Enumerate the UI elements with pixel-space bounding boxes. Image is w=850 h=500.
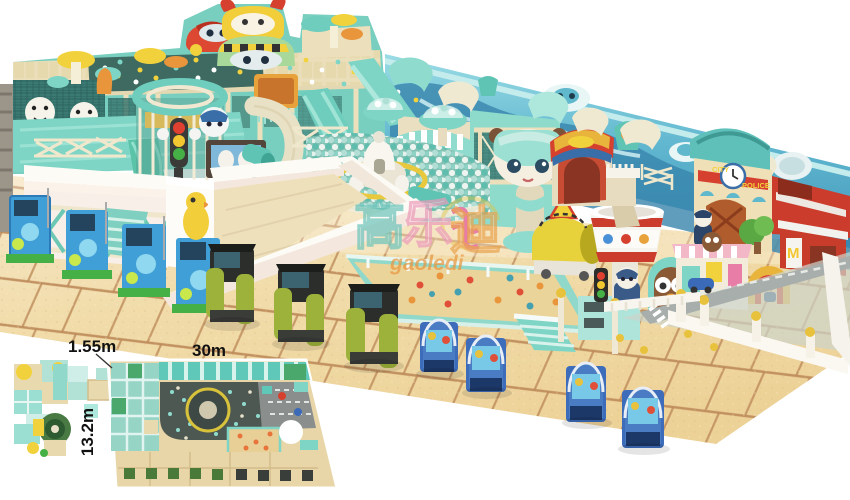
svg-text:1.55m: 1.55m bbox=[68, 337, 116, 356]
svg-text:POLICE: POLICE bbox=[742, 181, 770, 190]
svg-text:高: 高 bbox=[354, 198, 405, 255]
svg-text:30m: 30m bbox=[192, 341, 226, 360]
svg-text:迪: 迪 bbox=[450, 202, 501, 259]
svg-text:乐: 乐 bbox=[402, 196, 453, 253]
svg-text:CITY: CITY bbox=[712, 165, 729, 174]
svg-text:M: M bbox=[787, 245, 800, 262]
svg-text:13.2m: 13.2m bbox=[78, 408, 97, 456]
svg-text:gaoledi: gaoledi bbox=[389, 252, 465, 275]
